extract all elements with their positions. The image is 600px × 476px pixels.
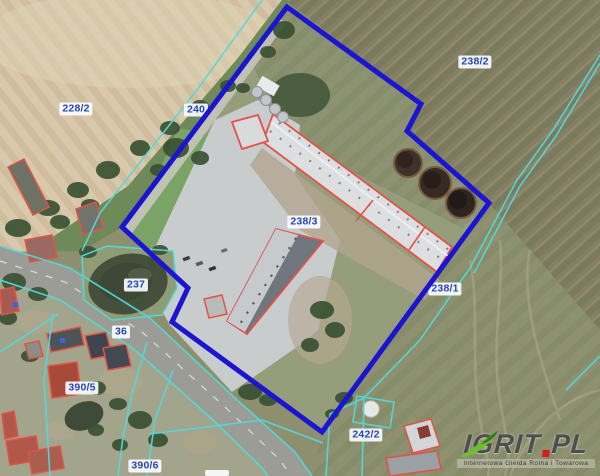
igrit-brand: IGRITPL [456,429,596,460]
brand-text-right: PL [551,429,590,460]
brand-dot [542,450,549,457]
igrit-watermark: IGRITPL Internetowa Giełda Rolna i Towar… [457,429,595,468]
parcel-labels-layer: 228/2 240 238/2 238/3 238/1 237 36 390/5… [0,0,600,476]
parcel-label-240: 240 [184,104,208,117]
parcel-label-238-3: 238/3 [287,216,320,229]
igrit-tagline: Internetowa Giełda Rolna i Towarowa [457,459,595,468]
parcel-label-242-2: 242/2 [349,429,382,442]
parcel-label-237: 237 [124,279,148,292]
parcel-label-390-5: 390/5 [65,382,98,395]
parcel-label-36: 36 [112,326,130,339]
parcel-label-clipped [205,470,229,476]
map-viewport[interactable]: 228/2 240 238/2 238/3 238/1 237 36 390/5… [0,0,600,476]
parcel-label-390-6: 390/6 [128,460,161,473]
parcel-label-238-1: 238/1 [428,283,461,296]
parcel-label-228-2: 228/2 [59,103,92,116]
igrit-swoosh-icon [456,429,500,459]
parcel-label-238-2: 238/2 [458,56,491,69]
